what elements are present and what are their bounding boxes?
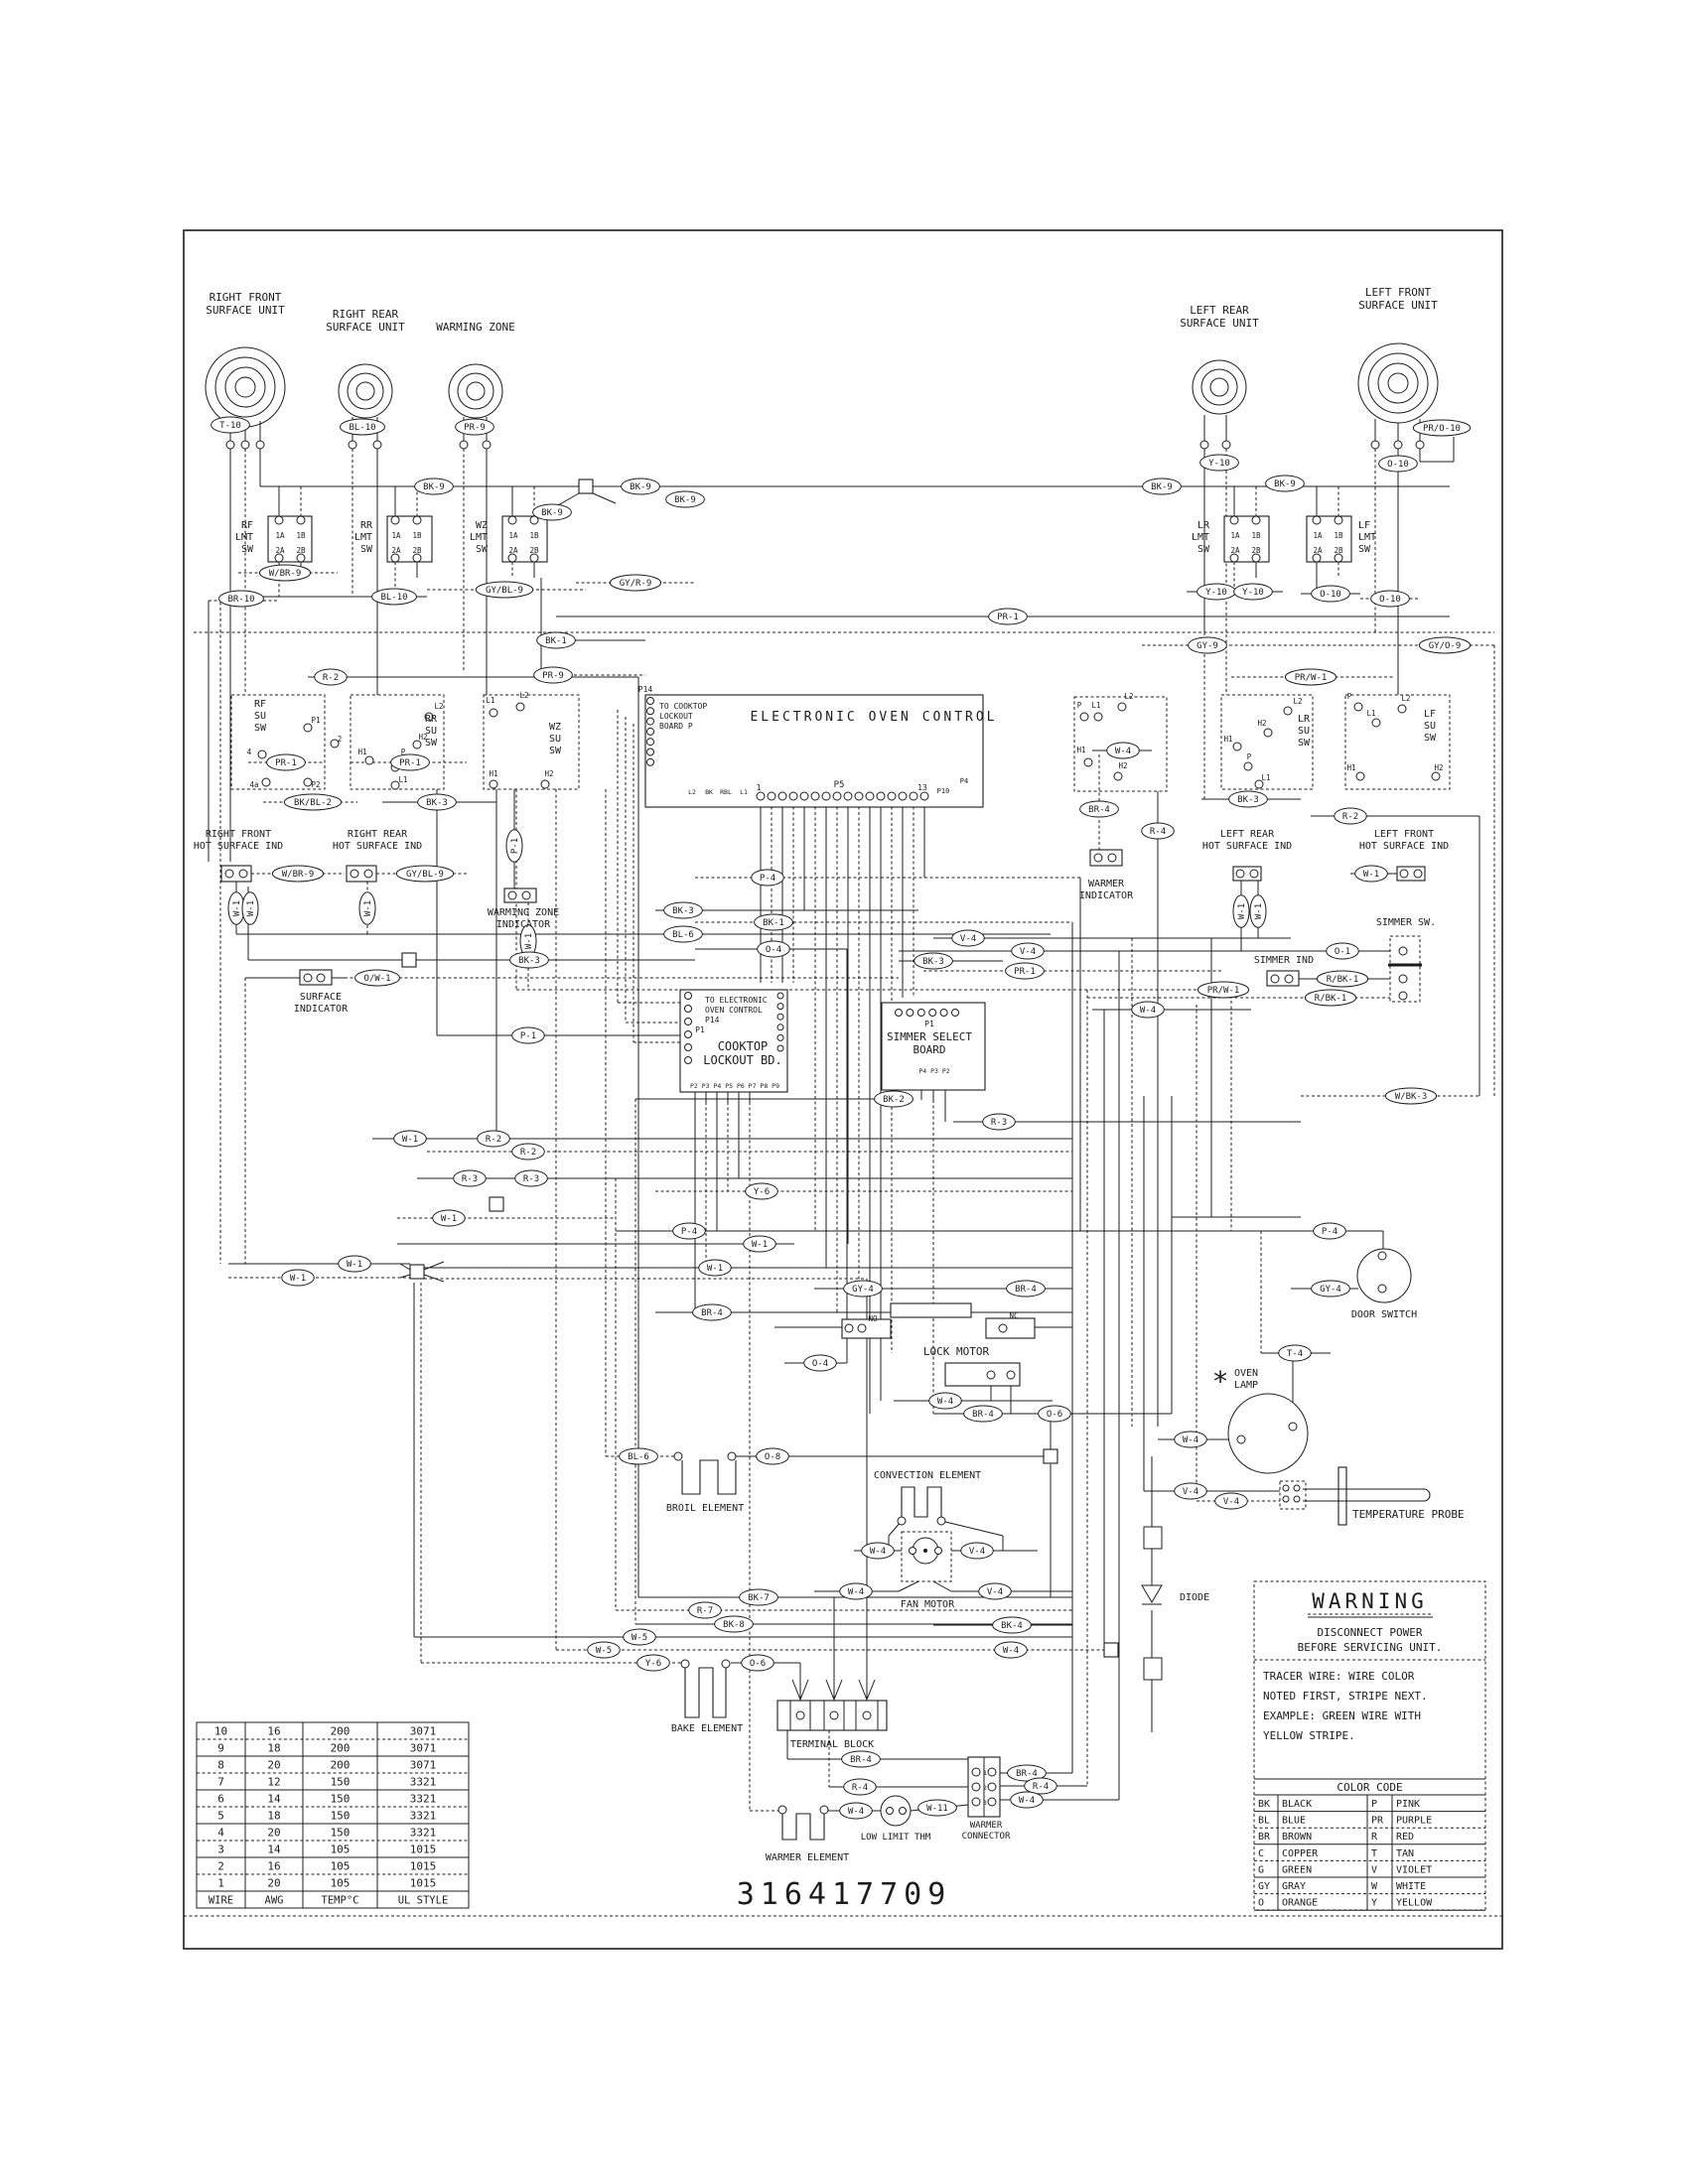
- pin-label-1a: 1A: [275, 531, 285, 540]
- component-label-rr-su-sw: RRSUSW: [425, 714, 438, 749]
- wire-label-bk-1: BK-1: [537, 632, 576, 648]
- wire-label-r-2: R-2: [478, 1131, 510, 1147]
- component-label-diode: DIODE: [1180, 1592, 1209, 1603]
- wire-label-r-3: R-3: [454, 1170, 487, 1186]
- color-code-name: BROWN: [1282, 1832, 1312, 1843]
- wire-label-text: W-1: [347, 1260, 362, 1270]
- wire-label-r-2: R-2: [315, 669, 348, 685]
- terminal: [722, 1660, 730, 1668]
- pin-label-p4-p3-p2: P4 P3 P2: [918, 1067, 949, 1075]
- terminal: [256, 441, 264, 449]
- pin-label-h2: H2: [418, 733, 427, 742]
- wire-label-text: Y-10: [1242, 588, 1264, 598]
- pin-label-2a: 2A: [275, 546, 285, 555]
- pin-label-rbl: RBL: [720, 788, 732, 796]
- wire-label-text: W-1: [752, 1240, 768, 1250]
- wire-label-text: BR-4: [972, 1410, 994, 1420]
- wire-label-r-bk-1: R/BK-1: [1317, 971, 1367, 987]
- terminal: [988, 1783, 996, 1791]
- terminal: [516, 703, 524, 711]
- eoc-p14-pin: [647, 758, 654, 765]
- terminal: [304, 724, 312, 732]
- wire-label-o-6: O-6: [1039, 1406, 1071, 1422]
- terminal: [987, 1371, 995, 1379]
- terminal: [297, 516, 305, 524]
- component-label-right-front-surface-unit: RIGHT FRONTSURFACE UNIT: [206, 291, 285, 317]
- wire-label-w-1: W-1: [1250, 895, 1266, 928]
- wire-label-v-4: V-4: [1175, 1483, 1207, 1499]
- wire-table-cell: 3321: [410, 1776, 437, 1789]
- component-label-surface-indicator: SURFACEINDICATOR: [294, 992, 349, 1015]
- wire-label-text: W-1: [1254, 903, 1264, 919]
- terminal: [937, 1517, 945, 1525]
- wire-label-text: V-4: [1183, 1487, 1198, 1497]
- terminal: [413, 554, 421, 562]
- wire-label-bl-10: BL-10: [341, 419, 385, 435]
- terminal: [1394, 441, 1402, 449]
- component-label-lr-su-sw: LRSUSW: [1298, 714, 1311, 749]
- wire-label-w-1: W-1: [359, 892, 375, 925]
- pin-label-p: P: [401, 748, 406, 756]
- terminal: [887, 1808, 894, 1815]
- terminal: [681, 1660, 689, 1668]
- component-label-right-front-hot-surface-ind: RIGHT FRONTHOT SURFACE IND: [194, 829, 283, 852]
- eoc-p5-pin: [844, 792, 852, 800]
- terminal: [988, 1798, 996, 1806]
- wire-label-bk-3: BK-3: [418, 794, 457, 810]
- wire-table-cell: 16: [267, 1725, 280, 1738]
- pin-label-2b: 2B: [296, 546, 306, 555]
- wire-label-pr-1: PR-1: [391, 754, 430, 770]
- terminal: [262, 778, 270, 786]
- tracer-note-line: TRACER WIRE: WIRE COLOR: [1263, 1670, 1415, 1683]
- terminal: [1094, 854, 1102, 862]
- wire-table-cell: 14: [267, 1793, 281, 1806]
- terminal: [317, 974, 325, 982]
- wire-label-text: BK-9: [674, 495, 696, 505]
- wire-label-pr-w-1: PR/W-1: [1285, 669, 1336, 685]
- pin-label-1b: 1B: [1334, 531, 1343, 540]
- pin-label-4a: 4a: [249, 780, 258, 789]
- color-code-name: GRAY: [1282, 1881, 1306, 1892]
- eoc-p5-pin: [800, 792, 808, 800]
- wire-label-bk-8: BK-8: [715, 1616, 754, 1632]
- lockout-p14-pin: [777, 993, 783, 999]
- wire-label-w-11: W-11: [918, 1800, 957, 1816]
- terminal: [1399, 992, 1407, 1000]
- junction: [410, 1265, 424, 1279]
- eoc-p5-pin: [789, 792, 797, 800]
- component-label-lock-motor: LOCK MOTOR: [923, 1345, 990, 1358]
- wire-label-text: R-2: [323, 673, 339, 683]
- color-code-name: RED: [1396, 1832, 1414, 1843]
- wire-label-text: BK-9: [541, 508, 563, 518]
- wire-label-pr-9: PR-9: [456, 419, 494, 435]
- color-code-name: YELLOW: [1396, 1898, 1433, 1909]
- terminal: [1252, 554, 1260, 562]
- component-label-electronic-oven-control: ELECTRONIC OVEN CONTROL: [750, 710, 997, 725]
- wire-label-gy-bl-9: GY/BL-9: [476, 582, 532, 598]
- color-code-abbrev: BR: [1258, 1832, 1271, 1843]
- wire-label-w-br-9: W/BR-9: [272, 866, 323, 882]
- wire-label-o-w-1: O/W-1: [355, 970, 400, 986]
- wire-label-text: PR-9: [464, 423, 486, 433]
- pin-label-h1: H1: [1223, 735, 1232, 744]
- wire-table-cell: 200: [331, 1725, 351, 1738]
- warning-box: WARNINGDISCONNECT POWERBEFORE SERVICING …: [1254, 1581, 1485, 1910]
- wire-label-text: PR-1: [1014, 967, 1036, 977]
- pin-label-h1: H1: [489, 769, 497, 778]
- wire-label-text: PR-1: [997, 613, 1019, 622]
- wire-label-text: BK-3: [1237, 795, 1259, 805]
- wire-table-cell: 2: [217, 1860, 224, 1873]
- terminal: [796, 1711, 804, 1719]
- terminal: [1236, 870, 1244, 878]
- wire-label-text: O-10: [1320, 590, 1341, 600]
- terminal: [999, 1324, 1007, 1332]
- lockout-p1-pin: [685, 1044, 692, 1051]
- wire-label-text: Y-6: [754, 1187, 770, 1197]
- component-label-fan-motor: FAN MOTOR: [901, 1599, 955, 1610]
- wire-table-cell: 18: [267, 1742, 280, 1755]
- wire-table-cell: 105: [331, 1860, 351, 1873]
- wire-label-text: W-1: [246, 900, 256, 916]
- wire-label-text: BL-6: [672, 930, 694, 940]
- wire-label-text: W-1: [524, 933, 534, 949]
- terminal: [1285, 975, 1293, 983]
- wire-label-w-4: W-4: [840, 1583, 873, 1599]
- wire-table-cell: 200: [331, 1759, 351, 1772]
- wire-label-r-2: R-2: [1335, 808, 1367, 824]
- terminal: [239, 870, 247, 878]
- terminal: [530, 554, 538, 562]
- simmer-select-p1-pin: [952, 1010, 959, 1017]
- color-code-abbrev: T: [1371, 1848, 1377, 1859]
- wire-label-text: PR/O-10: [1423, 424, 1461, 434]
- wire-table-cell: 3321: [410, 1827, 437, 1840]
- eoc-p14-pin: [647, 698, 654, 705]
- lockout-p14-pin: [777, 1014, 783, 1020]
- wire-label-text: P-1: [520, 1031, 536, 1041]
- terminal: [490, 709, 497, 717]
- wire-label-text: BK-9: [423, 482, 445, 492]
- wire-table-cell: 105: [331, 1843, 351, 1856]
- wire-table-cell: 4: [217, 1827, 224, 1840]
- terminal: [1200, 441, 1208, 449]
- terminal: [1084, 758, 1092, 766]
- terminal: [1354, 703, 1362, 711]
- wire-table-cell: 105: [331, 1877, 351, 1890]
- eoc-p5-pin: [920, 792, 928, 800]
- terminal: [820, 1806, 828, 1814]
- wire-label-bk-9: BK-9: [415, 478, 454, 494]
- pin-label-1: 1: [983, 1769, 987, 1777]
- wiring-diagram: T-10BL-10PR-9Y-10O-10PR/O-10BK-9BK-9BK-9…: [0, 0, 1688, 2184]
- wire-table-header: WIRE: [209, 1895, 233, 1907]
- terminal: [1108, 854, 1116, 862]
- component-label-wz-su-sw: WZSUSW: [549, 722, 562, 756]
- wire-label-text: V-4: [960, 934, 976, 944]
- terminal: [1118, 703, 1126, 711]
- wire-label-bk-3: BK-3: [1229, 791, 1268, 807]
- wire-label-text: W-1: [441, 1214, 457, 1224]
- wire-label-br-4: BR-4: [693, 1304, 732, 1320]
- color-code-abbrev: W: [1371, 1881, 1378, 1892]
- component-label-simmer-ind: SIMMER IND: [1254, 955, 1314, 966]
- wire-label-w-4: W-4: [862, 1543, 895, 1559]
- eoc-p5-pin: [757, 792, 765, 800]
- wire-label-p-4: P-4: [1314, 1223, 1346, 1239]
- wire-table-cell: 150: [331, 1793, 351, 1806]
- pin-label-1: 1: [757, 783, 762, 792]
- terminal: [391, 516, 399, 524]
- wire-label-bk-4: BK-4: [993, 1617, 1032, 1633]
- wire-table-cell: 1015: [410, 1843, 437, 1856]
- pin-label-l2: L2: [1401, 694, 1410, 703]
- lockout-p1-pin: [685, 1019, 692, 1025]
- wire-label-text: W-1: [402, 1135, 418, 1145]
- terminal: [910, 1548, 916, 1555]
- wire-label-text: W-4: [1003, 1646, 1019, 1656]
- warning-line: BEFORE SERVICING UNIT.: [1298, 1641, 1443, 1654]
- terminal: [1378, 1285, 1386, 1293]
- pin-label-2: 2: [983, 1784, 987, 1792]
- wire-label-w-1: W-1: [433, 1210, 466, 1226]
- pin-label-4: 4: [247, 748, 252, 756]
- wire-label-text: BR-4: [850, 1755, 872, 1765]
- pin-label-1a: 1A: [508, 531, 518, 540]
- wire-label-gy-bl-9: GY/BL-9: [396, 866, 453, 882]
- eoc-p5-pin: [855, 792, 863, 800]
- eoc-p5-pin: [811, 792, 819, 800]
- part-number: 316417709: [737, 1877, 952, 1912]
- terminal: [1294, 1485, 1300, 1491]
- wire-label-w-1: W-1: [394, 1131, 427, 1147]
- wire-label-text: O-8: [765, 1452, 780, 1462]
- pin-label-1a: 1A: [1230, 531, 1240, 540]
- pin-label-2a: 2A: [508, 546, 518, 555]
- terminal: [225, 870, 233, 878]
- terminal: [972, 1798, 980, 1806]
- wire-label-w-1: W-1: [1233, 895, 1249, 928]
- probe-bracket: [1338, 1467, 1346, 1525]
- terminal: [1371, 441, 1379, 449]
- terminal: [1399, 947, 1407, 955]
- pin-label-bk: BK: [705, 788, 713, 796]
- wire-label-p-1: P-1: [506, 830, 522, 863]
- wire-label-text: W-4: [1140, 1006, 1156, 1016]
- terminal: [1378, 1252, 1386, 1260]
- wire-label-text: W-4: [848, 1587, 864, 1597]
- color-code-title: COLOR CODE: [1336, 1781, 1402, 1794]
- pin-label-l2: L2: [434, 702, 443, 711]
- terminal: [483, 441, 491, 449]
- wire-label-br-4: BR-4: [1080, 801, 1119, 817]
- wire-label-text: BK-3: [672, 906, 694, 916]
- wire-label-text: R-4: [852, 1783, 868, 1793]
- eoc-p14-pin: [647, 739, 654, 746]
- terminal: [845, 1324, 853, 1332]
- color-code-name: GREEN: [1282, 1864, 1312, 1875]
- wire-label-r-4: R-4: [1142, 823, 1175, 839]
- pin-label-h2: H2: [1434, 763, 1443, 772]
- eoc-p5-pin: [866, 792, 874, 800]
- wire-label-text: BK/BL-2: [294, 798, 332, 808]
- wire-table-header: AWG: [265, 1895, 284, 1907]
- wire-label-o-4: O-4: [758, 941, 790, 957]
- pin-label-p1: P1: [695, 1025, 705, 1034]
- oven-lamp-body: [1228, 1394, 1308, 1473]
- color-code-abbrev: G: [1258, 1864, 1264, 1875]
- wire-label-text: T-4: [1287, 1349, 1303, 1359]
- component-label-right-rear-surface-unit: RIGHT REARSURFACE UNIT: [326, 308, 405, 334]
- pin-label-l2: L2: [1124, 692, 1133, 701]
- wire-table-cell: 3071: [410, 1742, 437, 1755]
- wire-label-o-10: O-10: [1371, 591, 1410, 607]
- terminal: [1252, 516, 1260, 524]
- wire-label-text: O-6: [1047, 1410, 1062, 1420]
- fan-motor-axis: [923, 1549, 927, 1553]
- component-label-temperature-probe: TEMPERATURE PROBE: [1352, 1508, 1465, 1521]
- wire-table-cell: 1015: [410, 1860, 437, 1873]
- wire-table-cell: 3: [217, 1843, 224, 1856]
- color-code-name: TAN: [1396, 1848, 1414, 1859]
- pin-label-h2: H2: [544, 769, 553, 778]
- component-label-low-limit-thm: LOW LIMIT THM: [861, 1833, 931, 1843]
- pin-label-h2: H2: [1118, 761, 1127, 770]
- wire-label-br-10: BR-10: [219, 591, 264, 607]
- wire-label-text: R-7: [697, 1606, 713, 1616]
- wire-label-pr-o-10: PR/O-10: [1413, 420, 1470, 436]
- wire-label-text: GY/R-9: [620, 579, 652, 589]
- color-code-abbrev: GY: [1258, 1881, 1270, 1892]
- terminal: [1237, 1435, 1245, 1443]
- wire-label-bk-9: BK-9: [1266, 476, 1305, 491]
- terminal: [1372, 719, 1380, 727]
- terminal: [365, 756, 373, 764]
- terminal: [1400, 870, 1408, 878]
- wire-label-gy-9: GY-9: [1189, 637, 1227, 653]
- wire-label-text: W-4: [848, 1807, 864, 1817]
- wire-label-text: BK-3: [426, 798, 448, 808]
- junction: [1044, 1449, 1057, 1463]
- color-code-name: PINK: [1396, 1799, 1420, 1810]
- wire-label-bk-1: BK-1: [755, 914, 793, 930]
- color-code-name: VIOLET: [1396, 1864, 1432, 1875]
- terminal: [1289, 1423, 1297, 1431]
- pin-label-p5: P5: [834, 780, 845, 790]
- wire-label-text: GY/BL-9: [406, 870, 444, 880]
- pin-label-1a: 1A: [391, 531, 401, 540]
- terminal: [241, 441, 249, 449]
- wire-label-text: W-4: [1115, 747, 1131, 756]
- wire-label-gy-r-9: GY/R-9: [610, 575, 660, 591]
- wire-label-o-6: O-6: [742, 1655, 774, 1671]
- wire-label-text: BR-4: [1088, 805, 1110, 815]
- eoc-p5-pin: [888, 792, 896, 800]
- pin-label-p: P: [1077, 701, 1082, 710]
- terminal: [522, 891, 530, 899]
- eoc-p5-pin: [877, 792, 885, 800]
- eoc-p14-pin: [647, 708, 654, 715]
- terminal: [1284, 707, 1292, 715]
- pin-label-l1: L1: [398, 775, 407, 784]
- simmer-select-p1-pin: [917, 1010, 924, 1017]
- tracer-note-line: YELLOW STRIPE.: [1263, 1729, 1355, 1742]
- terminal: [460, 441, 468, 449]
- pin-label-1b: 1B: [412, 531, 422, 540]
- pin-label-p: P: [1347, 692, 1352, 701]
- color-code-abbrev: C: [1258, 1848, 1264, 1859]
- wire-label-t-4: T-4: [1279, 1345, 1312, 1361]
- wire-label-y-6: Y-6: [637, 1655, 670, 1671]
- wire-label-w-4: W-4: [840, 1803, 873, 1819]
- terminal: [490, 780, 497, 788]
- terminal: [508, 891, 516, 899]
- terminal: [373, 441, 381, 449]
- color-code-name: WHITE: [1396, 1881, 1426, 1892]
- pin-label-2b: 2B: [412, 546, 422, 555]
- terminal: [391, 554, 399, 562]
- wire-label-text: GY-4: [852, 1285, 874, 1295]
- wire-label-bl-10: BL-10: [372, 589, 417, 605]
- pin-label-h1: H1: [1346, 763, 1355, 772]
- wire-label-text: PR/W-1: [1295, 673, 1328, 683]
- wire-label-bk-3: BK-3: [664, 902, 703, 918]
- eoc-p14-pin: [647, 749, 654, 755]
- wire-table-cell: 5: [217, 1810, 224, 1823]
- color-code-abbrev: R: [1371, 1832, 1378, 1843]
- wire-label-text: PR-9: [542, 671, 564, 681]
- wire-label-text: R-3: [991, 1118, 1007, 1128]
- terminal: [304, 974, 312, 982]
- wire-label-br-4: BR-4: [842, 1751, 881, 1767]
- wire-label-w-4: W-4: [995, 1642, 1028, 1658]
- pin-label-1b: 1B: [529, 531, 539, 540]
- junction: [490, 1197, 503, 1211]
- pin-label-nc: NC: [1009, 1311, 1018, 1320]
- wire-label-text: V-4: [1020, 947, 1036, 957]
- wire-label-w-br-9: W/BR-9: [259, 565, 310, 581]
- pin-label-1a: 1A: [1313, 531, 1323, 540]
- color-code-abbrev: Y: [1371, 1898, 1377, 1909]
- terminal: [863, 1711, 871, 1719]
- wire-label-bl-6: BL-6: [620, 1448, 658, 1464]
- eoc-p5-pin: [899, 792, 907, 800]
- pin-label-13: 13: [917, 783, 927, 792]
- terminal: [1313, 516, 1321, 524]
- pin-label-2a: 2A: [391, 546, 401, 555]
- simmer-select-p1-pin: [940, 1010, 947, 1017]
- color-code-abbrev: O: [1258, 1898, 1264, 1909]
- wire-label-text: W-5: [596, 1646, 612, 1656]
- wire-table-cell: 150: [331, 1827, 351, 1840]
- wire-label-o-4: O-4: [804, 1355, 837, 1371]
- pin-label-2b: 2B: [1334, 546, 1343, 555]
- wire-label-text: R-4: [1150, 827, 1166, 837]
- wire-label-o-10: O-10: [1379, 456, 1418, 472]
- wire-label-text: V-4: [969, 1547, 985, 1557]
- wire-label-bk-7: BK-7: [740, 1589, 778, 1605]
- eoc-p5-pin: [833, 792, 841, 800]
- pin-label-3: 3: [983, 1799, 987, 1807]
- wire-label-w-1: W-1: [1355, 866, 1388, 882]
- wire-label-text: R-2: [520, 1148, 536, 1158]
- wire-label-text: W-1: [707, 1264, 723, 1274]
- wire-label-o-1: O-1: [1327, 943, 1359, 959]
- terminal: [1250, 870, 1258, 878]
- eoc-p5-pin: [822, 792, 830, 800]
